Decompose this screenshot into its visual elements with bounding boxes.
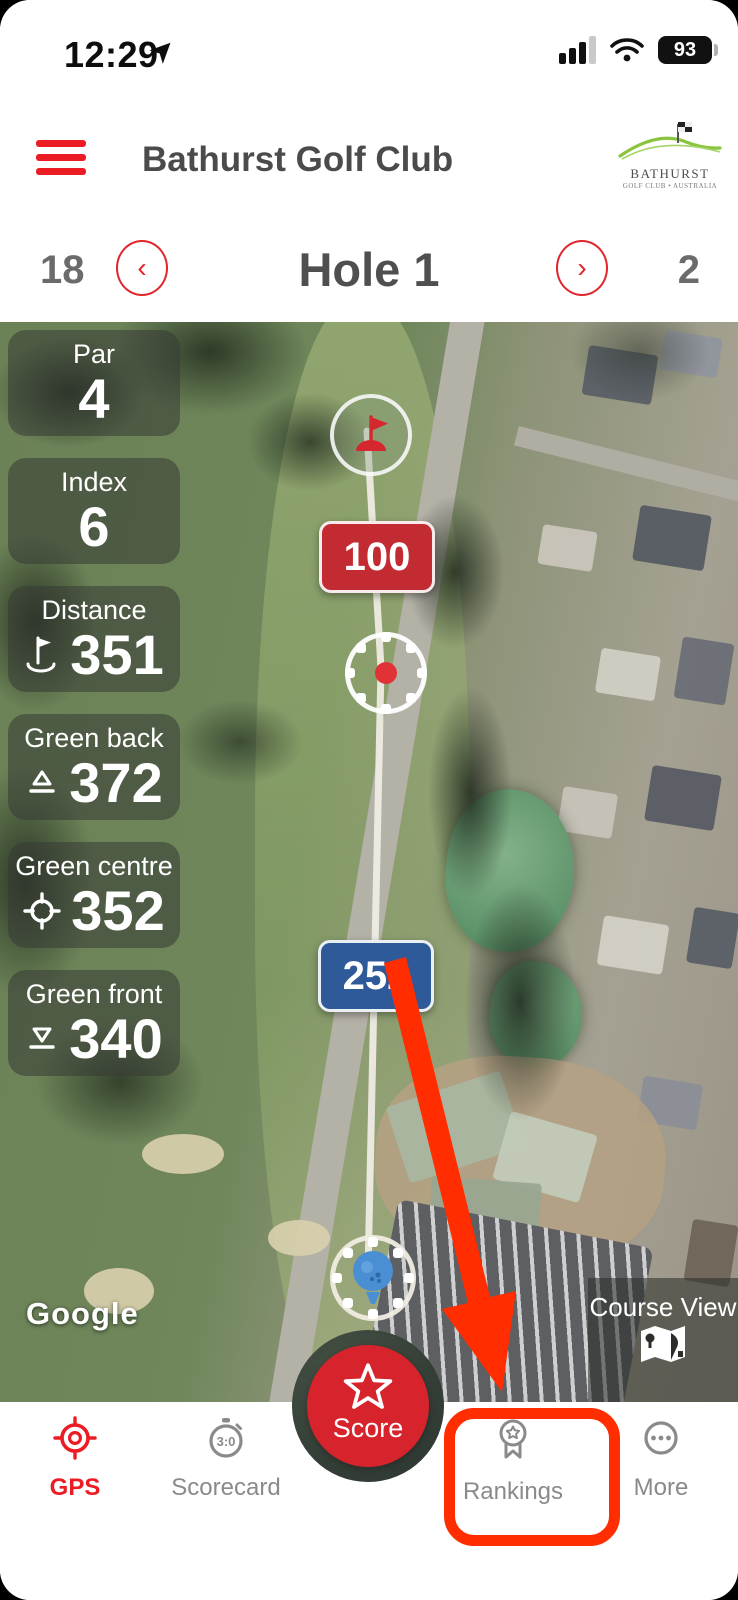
green-centre-icon xyxy=(23,892,61,930)
nav-item-gps[interactable]: GPS xyxy=(25,1416,125,1502)
app-header: Bathurst Golf Club BATHURST GOLF CLUB • … xyxy=(0,100,738,222)
svg-text:3:0: 3:0 xyxy=(217,1434,236,1449)
stat-value: 6 xyxy=(8,498,180,557)
stat-label: Par xyxy=(8,339,180,370)
green-flag-marker xyxy=(330,394,412,476)
status-bar: 12:29 ➤ 93 xyxy=(0,0,738,100)
next-hole-button[interactable]: › xyxy=(556,240,608,296)
target-reticle[interactable] xyxy=(345,632,427,714)
hole-path-line xyxy=(0,322,738,1402)
hole-navigation: 18 ‹ Hole 1 › 2 xyxy=(0,222,738,322)
stat-label: Index xyxy=(8,467,180,498)
hole-title: Hole 1 xyxy=(0,242,738,297)
nav-item-rankings[interactable]: Rankings xyxy=(443,1416,583,1506)
nav-label-more: More xyxy=(634,1474,689,1502)
stat-value: 4 xyxy=(8,370,180,429)
stat-par: Par 4 xyxy=(8,330,180,436)
nav-label-scorecard: Scorecard xyxy=(171,1474,280,1502)
course-view-button[interactable]: Course View xyxy=(588,1278,738,1402)
stat-green-back: Green back 372 xyxy=(8,714,180,820)
target-distance-value: 100 xyxy=(344,535,411,580)
stat-label: Green front xyxy=(8,979,180,1010)
stat-value: 340 xyxy=(69,1010,162,1069)
stat-label: Distance xyxy=(8,595,180,626)
star-icon xyxy=(342,1361,394,1411)
course-view-label: Course View xyxy=(590,1292,737,1323)
wifi-icon xyxy=(610,37,644,63)
google-watermark: Google xyxy=(26,1296,139,1332)
course-view-map-icon xyxy=(638,1323,688,1367)
nav-item-scorecard[interactable]: 3:0 Scorecard xyxy=(156,1416,296,1502)
club-logo-text: BATHURST xyxy=(616,166,724,182)
stat-label: Green back xyxy=(8,723,180,754)
cellular-signal-icon xyxy=(559,36,596,64)
app-screen: 12:29 ➤ 93 Bathurst Golf Club xyxy=(0,0,738,1600)
club-logo: BATHURST GOLF CLUB • AUSTRALIA xyxy=(616,118,724,190)
annotation-arrow xyxy=(0,322,738,1402)
red-flag-icon xyxy=(350,412,392,458)
nav-label-rankings: Rankings xyxy=(463,1478,563,1506)
gps-target-icon xyxy=(53,1416,97,1460)
battery-icon: 93 xyxy=(658,36,712,64)
nav-label-gps: GPS xyxy=(50,1474,101,1502)
stat-index: Index 6 xyxy=(8,458,180,564)
green-front-icon xyxy=(25,1022,59,1056)
page-title: Bathurst Golf Club xyxy=(142,140,453,180)
medal-icon xyxy=(491,1416,535,1464)
golf-ball-tee-icon xyxy=(349,1249,397,1307)
club-logo-hill-flag-icon xyxy=(616,118,724,160)
stat-value: 352 xyxy=(71,882,164,941)
stat-label: Green centre xyxy=(8,851,180,882)
green-back-icon xyxy=(25,766,59,800)
stat-green-front: Green front 340 xyxy=(8,970,180,1076)
chevron-right-icon: › xyxy=(577,252,586,284)
stat-value: 351 xyxy=(70,626,163,685)
stat-value: 372 xyxy=(69,754,162,813)
course-map[interactable]: 100 252 Par 4 xyxy=(0,322,738,1402)
tee-position-marker xyxy=(330,1235,416,1321)
tee-distance-badge: 252 xyxy=(318,940,434,1012)
stopwatch-icon: 3:0 xyxy=(204,1416,248,1460)
stat-green-centre: Green centre 352 xyxy=(8,842,180,948)
target-distance-badge: 100 xyxy=(319,521,435,593)
clock: 12:29 xyxy=(64,34,159,76)
ellipsis-icon xyxy=(639,1416,683,1460)
flag-hole-icon xyxy=(24,635,60,675)
tee-distance-value: 252 xyxy=(343,954,410,999)
target-dot-icon xyxy=(375,662,397,684)
club-logo-subtext: GOLF CLUB • AUSTRALIA xyxy=(616,182,724,190)
menu-icon[interactable] xyxy=(36,140,86,182)
nav-item-more[interactable]: More xyxy=(601,1416,721,1502)
score-button[interactable]: Score xyxy=(307,1345,429,1467)
next-hole-number: 2 xyxy=(678,248,700,293)
stat-distance: Distance 351 xyxy=(8,586,180,692)
score-button-label: Score xyxy=(333,1413,404,1444)
battery-percent: 93 xyxy=(674,39,696,62)
